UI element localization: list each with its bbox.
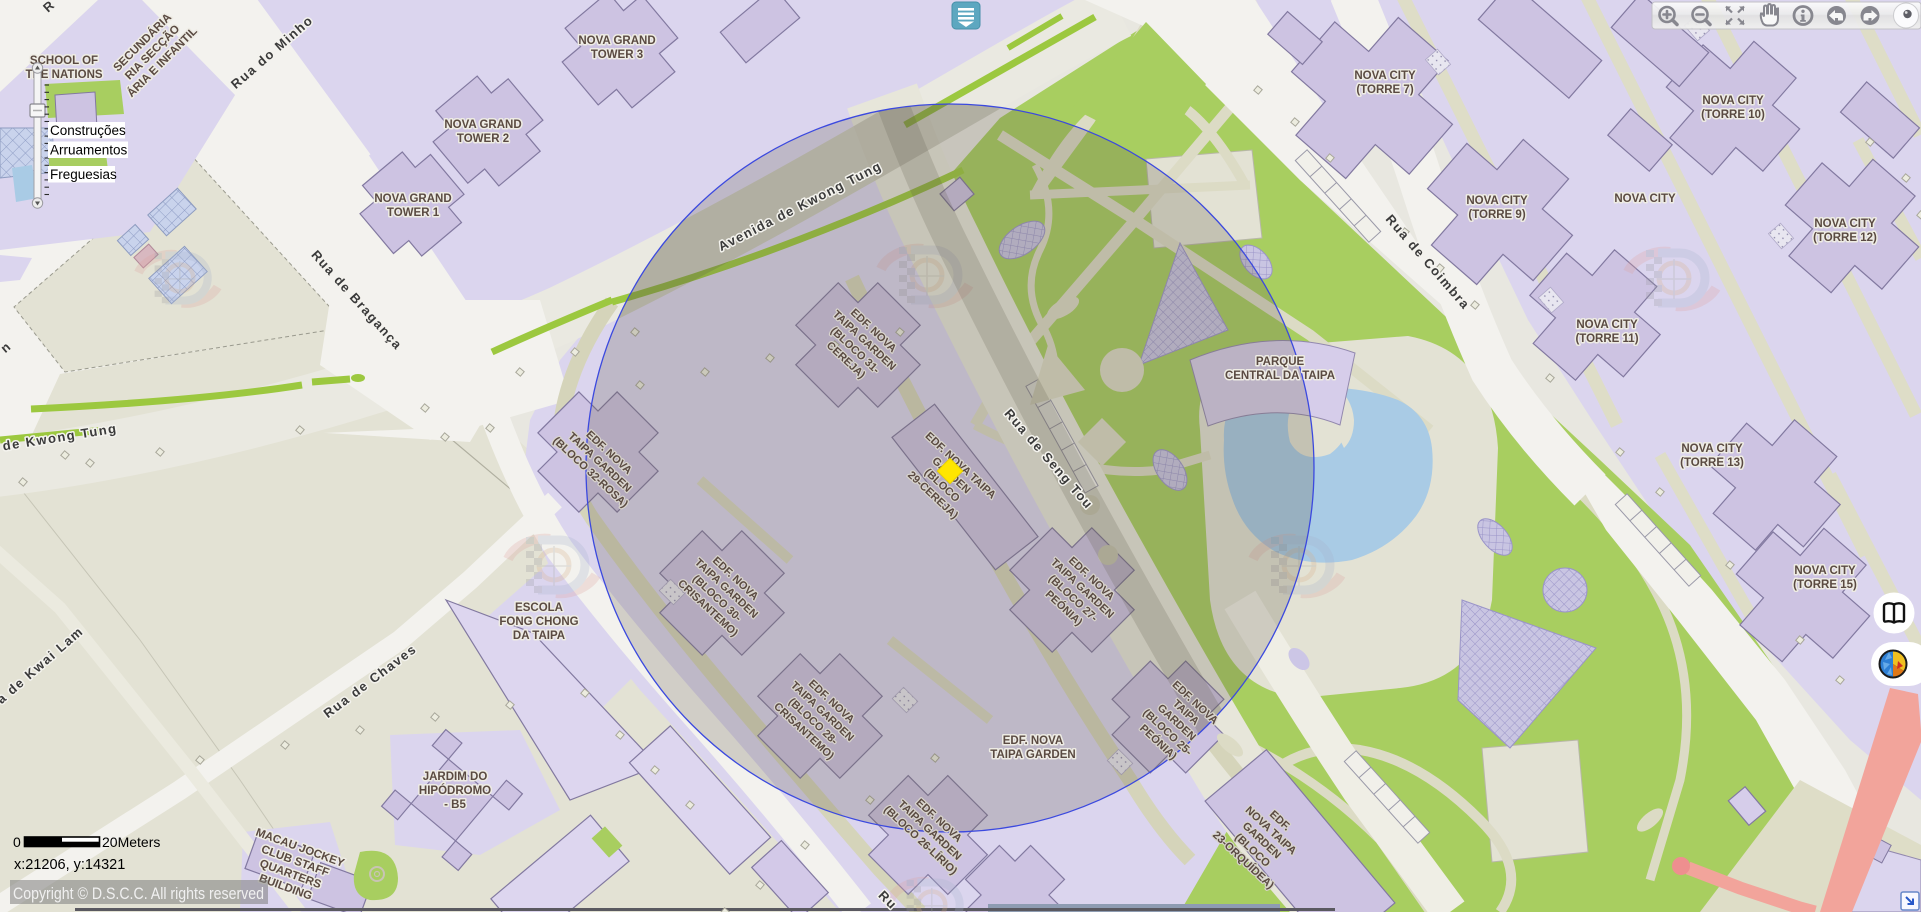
svg-text:NOVA CITY: NOVA CITY xyxy=(1576,319,1638,331)
svg-text:(TORRE 15): (TORRE 15) xyxy=(1793,579,1857,591)
svg-text:TOWER 3: TOWER 3 xyxy=(591,49,643,61)
svg-text:Construções: Construções xyxy=(50,123,126,138)
svg-text:Copyright © D.S.C.C. All right: Copyright © D.S.C.C. All rights reserved xyxy=(13,884,264,903)
svg-text:(TORRE 10): (TORRE 10) xyxy=(1701,109,1765,121)
svg-text:Arruamentos: Arruamentos xyxy=(50,143,128,158)
svg-text:NOVA CITY: NOVA CITY xyxy=(1814,218,1876,230)
svg-text:(TORRE 7): (TORRE 7) xyxy=(1356,84,1413,96)
svg-text:NOVA CITY: NOVA CITY xyxy=(1614,193,1676,205)
svg-text:TOWER 2: TOWER 2 xyxy=(457,133,509,145)
svg-text:(TORRE 9): (TORRE 9) xyxy=(1468,209,1525,221)
svg-text:NOVA GRAND: NOVA GRAND xyxy=(578,35,655,47)
svg-text:NOVA GRAND: NOVA GRAND xyxy=(444,119,521,131)
svg-text:NOVA CITY: NOVA CITY xyxy=(1681,443,1743,455)
svg-text:PARQUE: PARQUE xyxy=(1256,356,1305,368)
svg-text:ESCOLA: ESCOLA xyxy=(515,602,563,614)
svg-text:FONG CHONG: FONG CHONG xyxy=(499,616,578,628)
svg-text:EDF. NOVA: EDF. NOVA xyxy=(1003,735,1064,747)
svg-text:HIPÓDROMO: HIPÓDROMO xyxy=(419,784,491,797)
svg-text:(TORRE 13): (TORRE 13) xyxy=(1680,457,1744,469)
svg-text:NOVA CITY: NOVA CITY xyxy=(1702,95,1764,107)
svg-text:NOVA CITY: NOVA CITY xyxy=(1354,70,1416,82)
svg-text:TAIPA GARDEN: TAIPA GARDEN xyxy=(990,749,1075,761)
svg-text:0: 0 xyxy=(13,834,21,850)
svg-text:- B5: - B5 xyxy=(444,799,466,811)
svg-text:DA TAIPA: DA TAIPA xyxy=(513,630,565,642)
svg-text:Freguesias: Freguesias xyxy=(50,167,117,182)
svg-text:NOVA CITY: NOVA CITY xyxy=(1794,565,1856,577)
svg-text:NOVA CITY: NOVA CITY xyxy=(1466,195,1528,207)
svg-text:NOVA GRAND: NOVA GRAND xyxy=(374,193,451,205)
svg-text:(TORRE 11): (TORRE 11) xyxy=(1575,333,1638,345)
svg-text:CENTRAL DA TAIPA: CENTRAL DA TAIPA xyxy=(1225,370,1335,382)
svg-text:x:21206, y:14321: x:21206, y:14321 xyxy=(14,857,125,873)
svg-text:(TORRE 12): (TORRE 12) xyxy=(1813,232,1877,244)
svg-text:20Meters: 20Meters xyxy=(102,834,160,850)
svg-text:JARDIM DO: JARDIM DO xyxy=(423,771,488,783)
svg-text:TOWER 1: TOWER 1 xyxy=(387,207,440,219)
